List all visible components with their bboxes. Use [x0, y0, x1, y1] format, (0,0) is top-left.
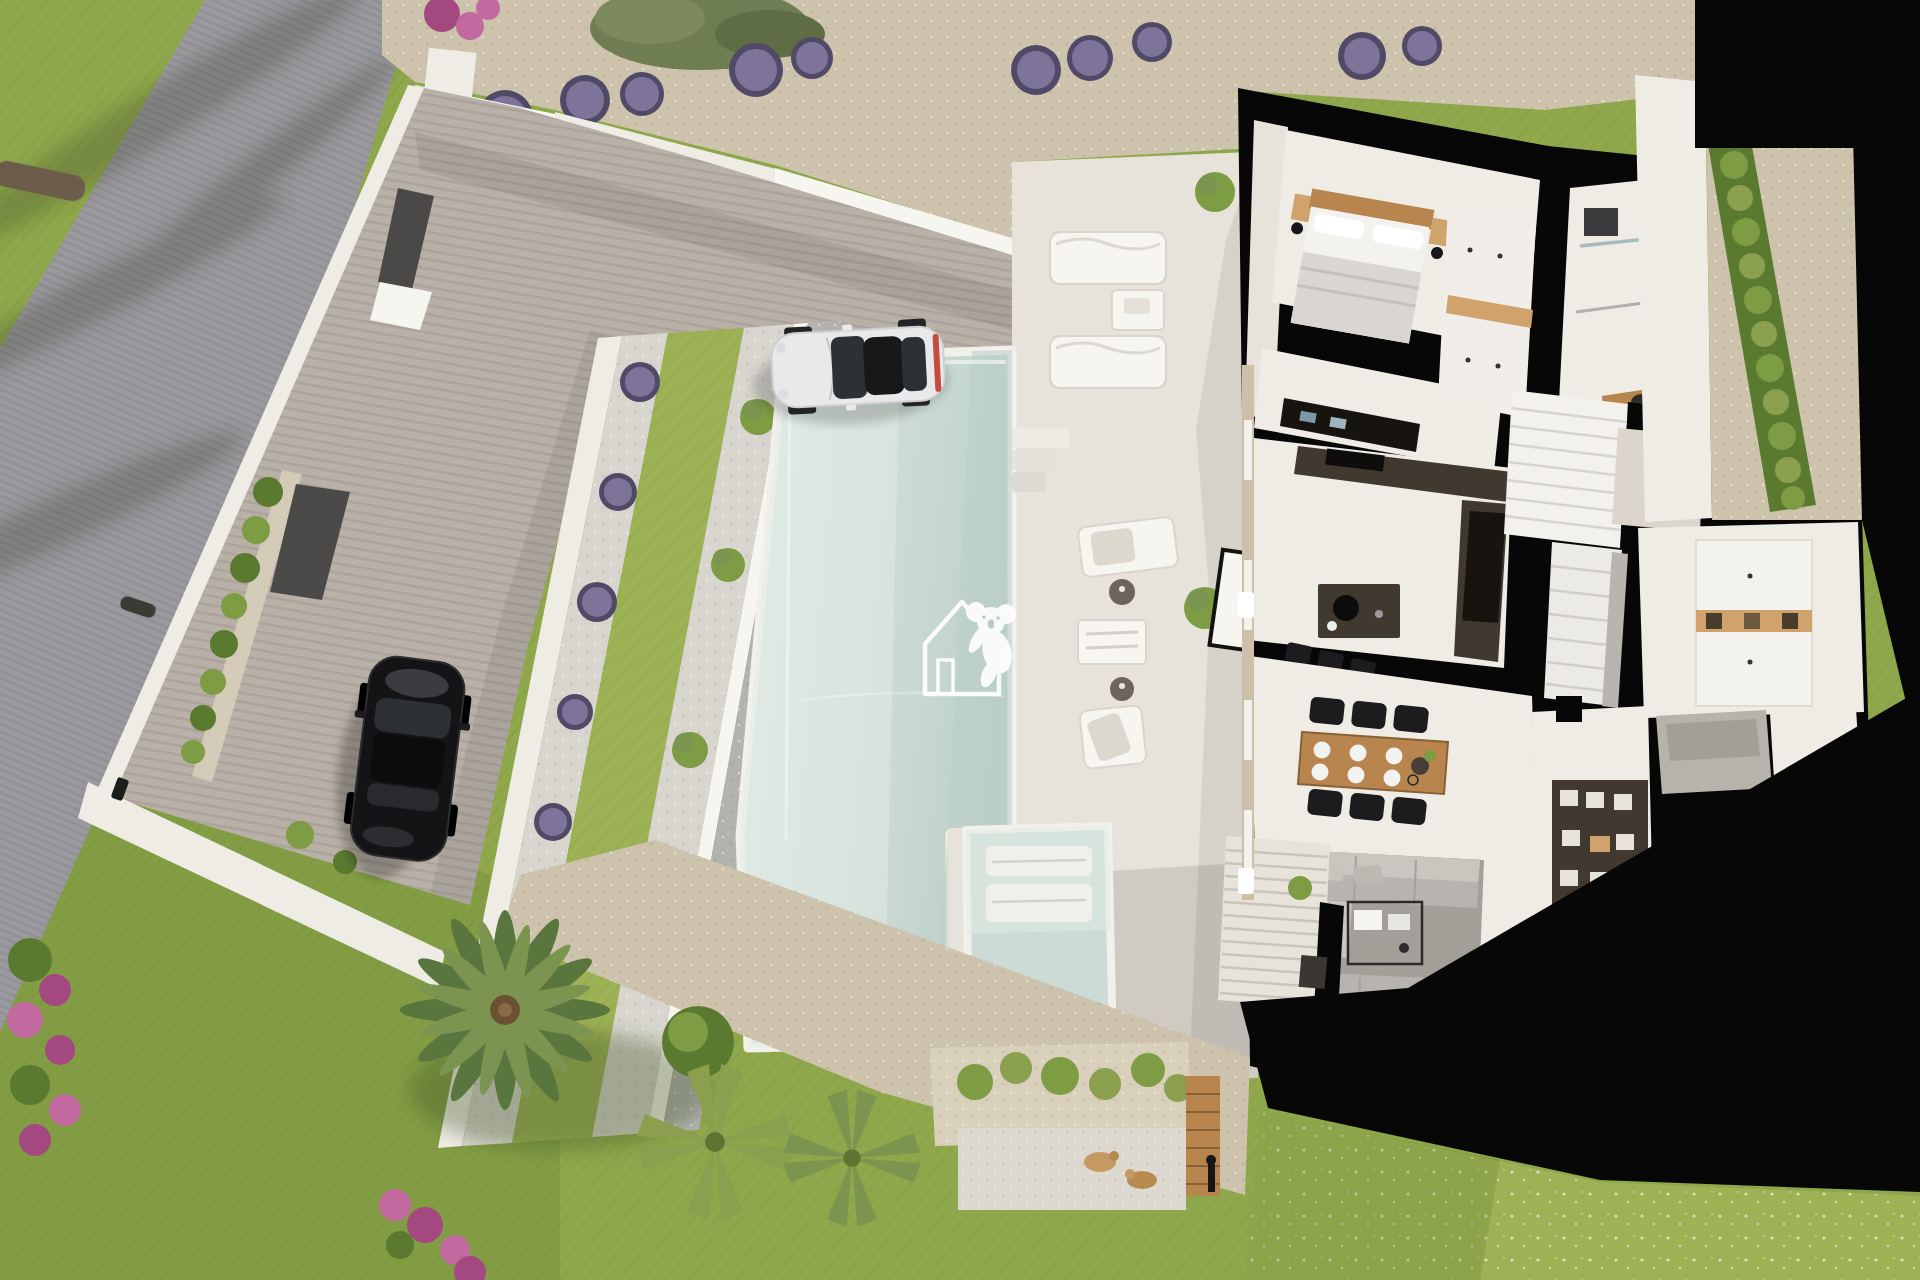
- shower: [1584, 208, 1618, 236]
- side-table: [1078, 620, 1146, 664]
- wardrobe: [1438, 205, 1536, 418]
- pebble-terrace: [958, 1128, 1216, 1210]
- kitchen: [1248, 438, 1512, 681]
- towel: [1238, 868, 1254, 894]
- dining-set: [1298, 696, 1448, 825]
- pergola: [1218, 836, 1344, 1014]
- pool-benches: [986, 846, 1092, 922]
- towel: [1238, 592, 1254, 618]
- aerial-villa-render: [0, 0, 1920, 1280]
- garden-lamp: [1208, 1164, 1215, 1192]
